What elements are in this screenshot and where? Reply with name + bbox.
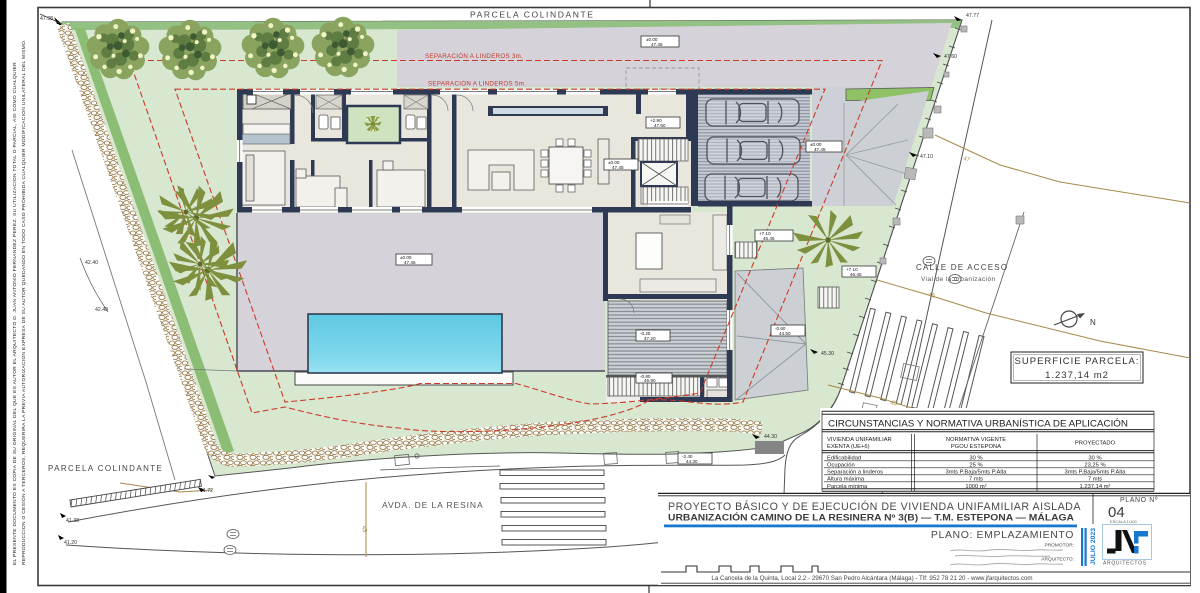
svg-text:CIRCUNSTANCIAS Y NORMATIVA URB: CIRCUNSTANCIAS Y NORMATIVA URBANÍSTICA D… (828, 419, 1128, 429)
svg-text:PLANO Nº: PLANO Nº (1120, 497, 1158, 504)
svg-text:47.45: 47.45 (651, 42, 663, 47)
svg-text:47.77: 47.77 (966, 13, 979, 19)
svg-text:3mts P.Baja/5mts P.Alta: 3mts P.Baja/5mts P.Alta (945, 470, 1007, 476)
svg-text:7 mts: 7 mts (1088, 477, 1102, 483)
svg-text:Vial de la urbanización: Vial de la urbanización (921, 276, 996, 283)
svg-text:47.60: 47.60 (944, 54, 957, 60)
svg-text:SEPARACIÓN A LINDEROS 5m.: SEPARACIÓN A LINDEROS 5m. (428, 81, 526, 88)
svg-text:PGOU ESTEPONA: PGOU ESTEPONA (951, 444, 1001, 450)
svg-text:REPRODUCCION O CESION A TERCER: REPRODUCCION O CESION A TERCEROS, REQUER… (21, 39, 27, 565)
svg-text:1000 m²: 1000 m² (965, 484, 986, 490)
svg-text:N: N (1090, 318, 1096, 327)
svg-text:ESCALA 1/100: ESCALA 1/100 (1110, 519, 1137, 524)
svg-text:NORMATIVA VIGENTE: NORMATIVA VIGENTE (946, 437, 1006, 443)
svg-text:30 %: 30 % (1088, 456, 1101, 462)
svg-text:PROYECTO BÁSICO Y DE EJECUCIÓN: PROYECTO BÁSICO Y DE EJECUCIÓN DE VIVIEN… (668, 500, 1081, 513)
svg-text:SEPARACIÓN A LINDEROS 3m.: SEPARACIÓN A LINDEROS 3m. (425, 53, 523, 60)
svg-text:1.237,14 m²: 1.237,14 m² (1080, 484, 1111, 490)
svg-text:42.48: 42.48 (95, 307, 108, 313)
svg-text:EXENTA (UE+6): EXENTA (UE+6) (827, 444, 870, 450)
svg-text:EL PRESENTE DOCUMENTO ES COPIA: EL PRESENTE DOCUMENTO ES COPIA DE SU ORI… (12, 62, 18, 565)
svg-text:41.20: 41.20 (64, 540, 77, 546)
svg-text:30 %: 30 % (969, 456, 982, 462)
svg-text:47.10: 47.10 (920, 154, 933, 160)
svg-text:Separación a linderos: Separación a linderos (827, 470, 883, 476)
svg-text:47.45: 47.45 (404, 260, 416, 265)
svg-text:1.237,14 m2: 1.237,14 m2 (1045, 370, 1109, 381)
svg-text:URBANIZACIÓN CAMINO DE LA: URBANIZACIÓN CAMINO DE LA RESINERA Nº 3(… (668, 512, 1075, 523)
svg-text:Edificabilidad: Edificabilidad (827, 456, 861, 462)
svg-text:PROYECTADO: PROYECTADO (1075, 441, 1116, 447)
svg-text:45.30: 45.30 (821, 351, 834, 357)
svg-text:44.30: 44.30 (686, 459, 698, 464)
svg-text:25 %: 25 % (969, 463, 982, 469)
svg-text:44.30: 44.30 (764, 434, 777, 440)
svg-text:3mts P.Baja/5mts P.Alta: 3mts P.Baja/5mts P.Alta (1064, 470, 1126, 476)
svg-text:Ocupación: Ocupación (827, 463, 855, 469)
svg-text:46.45: 46.45 (763, 236, 775, 241)
svg-text:47.20: 47.20 (644, 336, 656, 341)
svg-text:JULIO 2023: JULIO 2023 (1090, 528, 1097, 565)
svg-text:47.45: 47.45 (612, 165, 624, 170)
svg-text:41.38: 41.38 (66, 518, 79, 524)
svg-text:SUPERFICIE PARCELA:: SUPERFICIE PARCELA: (1015, 356, 1140, 367)
svg-text:47.60: 47.60 (654, 123, 666, 128)
svg-text:PLANO: EMPLAZAMIENTO: PLANO: EMPLAZAMIENTO (931, 529, 1074, 541)
svg-text:Altura máxima: Altura máxima (827, 477, 865, 483)
svg-text:VIVIENDA UNIFAMILIAR: VIVIENDA UNIFAMILIAR (827, 437, 892, 443)
svg-text:42.40: 42.40 (85, 260, 98, 266)
svg-text:CALLE DE ACCESO: CALLE DE ACCESO (916, 263, 1008, 272)
svg-text:ARQUITECTOS: ARQUITECTOS (1103, 561, 1147, 567)
svg-text:47.45: 47.45 (814, 147, 826, 152)
svg-text:45.90: 45.90 (644, 378, 656, 383)
svg-text:AVDA. DE LA RESINA: AVDA. DE LA RESINA (382, 500, 484, 510)
svg-text:46.45: 46.45 (850, 272, 862, 277)
svg-text:La Cancela de la Quinta, Local: La Cancela de la Quinta, Local 2.2 - 296… (711, 575, 1032, 582)
svg-text:Parcela mínima: Parcela mínima (827, 484, 868, 490)
svg-text:ARQUITECTO:: ARQUITECTO: (1041, 557, 1074, 563)
svg-text:23,25 %: 23,25 % (1084, 463, 1105, 469)
svg-text:44.50: 44.50 (779, 331, 791, 336)
svg-text:7 mts: 7 mts (969, 477, 983, 483)
svg-text:PROMOTOR:: PROMOTOR: (1045, 543, 1075, 549)
svg-text:PARCELA COLINDANTE: PARCELA COLINDANTE (470, 10, 595, 20)
svg-text:PARCELA COLINDANTE: PARCELA COLINDANTE (48, 464, 163, 473)
